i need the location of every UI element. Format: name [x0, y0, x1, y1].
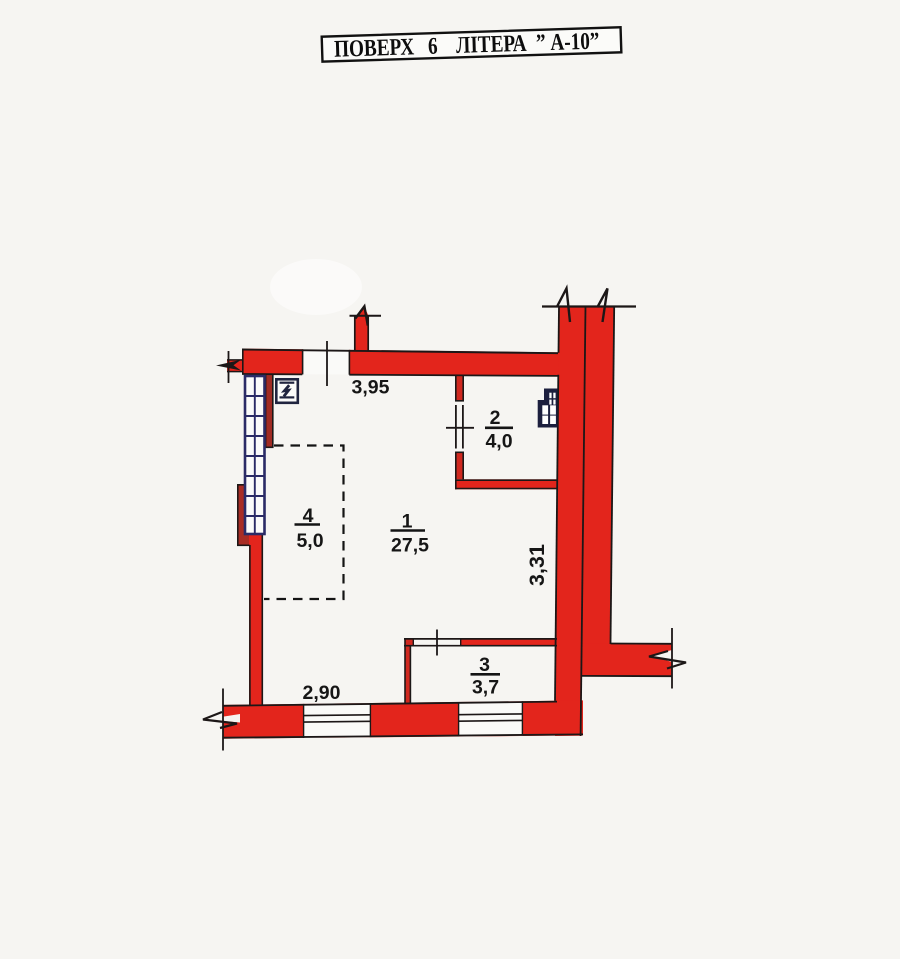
svg-text:5,0: 5,0	[296, 530, 323, 552]
svg-text:27,5: 27,5	[391, 535, 429, 557]
svg-text:3,95: 3,95	[352, 377, 390, 399]
svg-text:2,90: 2,90	[303, 682, 341, 704]
svg-text:3,7: 3,7	[472, 676, 499, 698]
svg-text:” А-10”: ” А-10”	[536, 27, 600, 55]
svg-text:4,0: 4,0	[485, 431, 512, 453]
svg-text:ЛІТЕРА: ЛІТЕРА	[456, 30, 528, 59]
svg-text:3: 3	[479, 654, 490, 676]
svg-text:ПОВЕРХ: ПОВЕРХ	[334, 33, 415, 62]
svg-text:2: 2	[490, 407, 501, 429]
svg-text:6: 6	[428, 33, 439, 60]
svg-text:3,31: 3,31	[525, 544, 549, 586]
